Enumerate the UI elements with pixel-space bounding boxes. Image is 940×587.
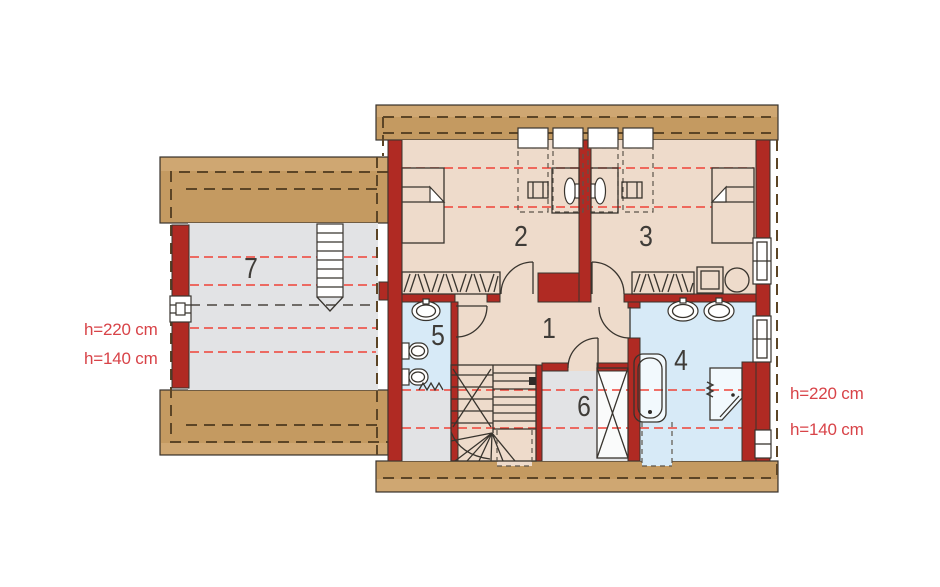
mid-wall-seg2 — [487, 294, 500, 302]
roof-window-icon — [588, 128, 618, 148]
room-label-1: 1 — [532, 313, 566, 345]
stair-east-wall — [536, 365, 542, 461]
west-wall-pier — [379, 282, 388, 300]
roof-window-icon — [623, 128, 653, 148]
mid-wall-seg3 — [624, 294, 756, 302]
chair-icon — [595, 178, 606, 204]
wardrobe-icon — [402, 272, 500, 294]
chair-icon — [565, 178, 576, 204]
east-wall-thick — [742, 362, 756, 461]
window-icon — [753, 238, 771, 284]
center-pier — [538, 273, 579, 302]
room-label-7: 7 — [234, 253, 268, 285]
room5-low-floor — [402, 390, 452, 461]
height-annotation-right-140: h=140 cm — [790, 421, 864, 439]
room6-north-wall-a — [542, 363, 568, 371]
room7-floor — [188, 223, 378, 390]
height-annotation-left-220: h=220 cm — [84, 321, 158, 339]
room-label-3: 3 — [629, 221, 663, 253]
stair-door-handle — [529, 377, 536, 385]
window-icon — [753, 316, 771, 362]
roof-window-icon — [553, 128, 583, 148]
roof-window-icon — [518, 128, 548, 148]
height-annotation-right-220: h=220 cm — [790, 385, 864, 403]
annex-wing — [160, 157, 388, 455]
room-label-6: 6 — [567, 391, 601, 423]
bedroom-partition-wall — [579, 140, 591, 302]
wardrobe-icon — [632, 272, 694, 294]
main-west-wall — [388, 140, 402, 461]
room6-north-wall-b — [597, 363, 628, 371]
bed-icon — [712, 168, 754, 243]
height-annotation-left-140: h=140 cm — [84, 350, 158, 368]
main-east-wall — [756, 140, 770, 461]
room-label-4: 4 — [664, 345, 698, 377]
floor-plan-canvas — [0, 0, 940, 587]
room-label-2: 2 — [504, 221, 538, 253]
annex-window — [170, 296, 191, 322]
floor-plan-page: 1 2 3 4 5 6 7 h=220 cm h=140 cm h=220 cm… — [0, 0, 940, 587]
bidet-icon — [402, 369, 428, 385]
room-label-5: 5 — [421, 320, 455, 352]
bed-icon — [402, 168, 444, 243]
window-icon — [755, 430, 771, 458]
